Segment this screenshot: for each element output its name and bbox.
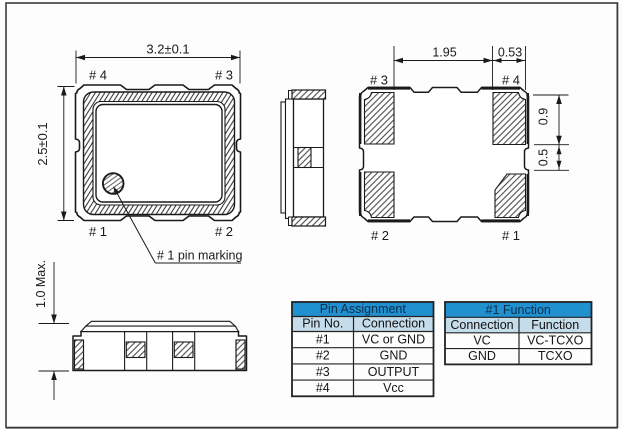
svg-text:# 1: # 1: [89, 224, 107, 239]
svg-text:#2: #2: [316, 349, 330, 363]
svg-text:Connection: Connection: [362, 317, 425, 331]
svg-text:OUTPUT: OUTPUT: [368, 365, 420, 379]
svg-text:#1: #1: [316, 333, 330, 347]
svg-text:#1 Function: #1 Function: [486, 303, 551, 317]
svg-text:# 1 pin marking: # 1 pin marking: [157, 249, 243, 263]
svg-text:#4: #4: [316, 381, 330, 395]
svg-text:# 4: # 4: [502, 73, 520, 88]
svg-text:GND: GND: [380, 349, 408, 363]
svg-text:Connection: Connection: [450, 318, 513, 332]
svg-text:GND: GND: [468, 349, 496, 363]
svg-text:Function: Function: [531, 318, 579, 332]
svg-text:VC or GND: VC or GND: [362, 333, 425, 347]
svg-text:3.2±0.1: 3.2±0.1: [146, 42, 189, 57]
svg-text:Vcc: Vcc: [383, 381, 404, 395]
svg-text:Pin Assignment: Pin Assignment: [320, 302, 407, 316]
svg-text:0.53: 0.53: [498, 46, 522, 60]
svg-text:0.5: 0.5: [537, 149, 551, 166]
svg-text:# 4: # 4: [89, 68, 107, 83]
svg-text:0.9: 0.9: [537, 108, 551, 125]
svg-text:# 1: # 1: [502, 228, 520, 243]
svg-text:#3: #3: [316, 365, 330, 379]
svg-text:# 2: # 2: [371, 228, 389, 243]
svg-text:2.5±0.1: 2.5±0.1: [35, 122, 50, 165]
svg-text:1.95: 1.95: [432, 46, 456, 60]
svg-text:1.0 Max.: 1.0 Max.: [34, 260, 48, 308]
svg-text:# 2: # 2: [215, 224, 233, 239]
svg-text:# 3: # 3: [370, 73, 388, 88]
svg-text:VC-TCXO: VC-TCXO: [527, 333, 584, 347]
svg-text:TCXO: TCXO: [538, 349, 573, 363]
svg-text:VC: VC: [473, 333, 490, 347]
svg-text:# 3: # 3: [215, 68, 233, 83]
svg-text:Pin No.: Pin No.: [302, 317, 343, 331]
